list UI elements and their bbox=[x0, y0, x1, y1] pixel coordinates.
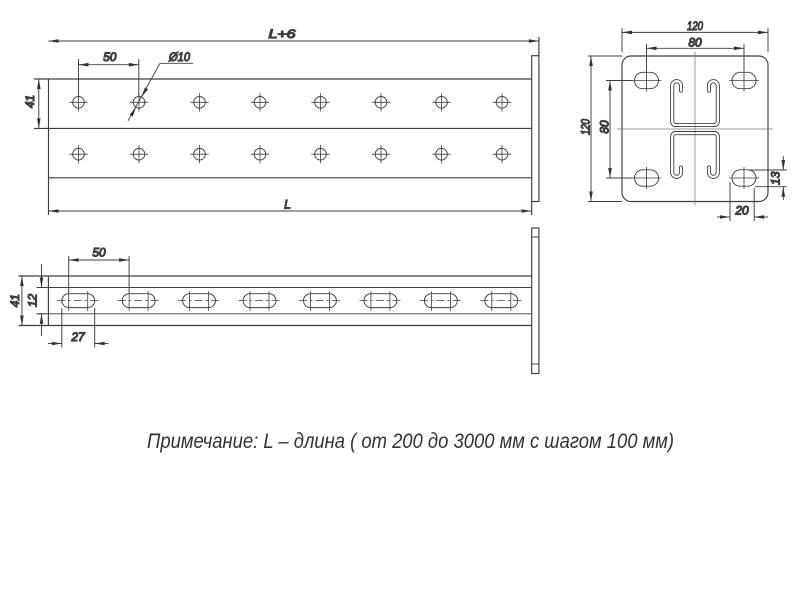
svg-text:120: 120 bbox=[687, 19, 703, 33]
svg-text:20: 20 bbox=[734, 204, 749, 218]
svg-text:13: 13 bbox=[769, 171, 783, 185]
svg-text:80: 80 bbox=[688, 36, 702, 50]
svg-text:120: 120 bbox=[579, 119, 593, 135]
svg-text:41: 41 bbox=[8, 294, 22, 307]
svg-text:50: 50 bbox=[103, 50, 117, 64]
svg-text:27: 27 bbox=[70, 330, 86, 344]
svg-text:41: 41 bbox=[23, 95, 37, 108]
svg-text:80: 80 bbox=[598, 120, 612, 134]
svg-text:L+6: L+6 bbox=[269, 27, 296, 41]
svg-text:L: L bbox=[284, 198, 291, 212]
svg-text:Примечание: L – длина ( от 200: Примечание: L – длина ( от 200 до 3000 м… bbox=[147, 430, 674, 453]
svg-text:12: 12 bbox=[26, 294, 40, 308]
svg-text:Ø10: Ø10 bbox=[168, 50, 190, 64]
svg-text:50: 50 bbox=[92, 246, 106, 260]
